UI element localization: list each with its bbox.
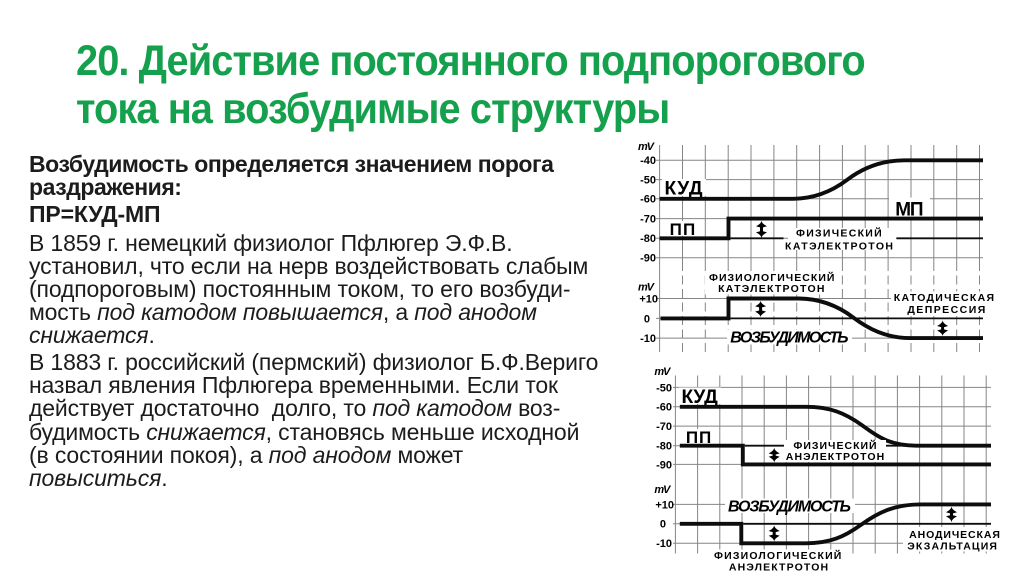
svg-text:КАТЭЛЕКТРОТОН: КАТЭЛЕКТРОТОН — [785, 240, 893, 252]
svg-text:-70: -70 — [640, 214, 656, 226]
svg-text:АНЭЛЕКТРОТОН: АНЭЛЕКТРОТОН — [786, 451, 884, 463]
svg-text:-80: -80 — [656, 441, 672, 453]
svg-text:ЭКЗАЛЬТАЦИЯ: ЭКЗАЛЬТАЦИЯ — [907, 540, 997, 552]
svg-text:КАТОДИЧЕСКАЯ: КАТОДИЧЕСКАЯ — [894, 292, 994, 304]
svg-text:ДЕПРЕССИЯ: ДЕПРЕССИЯ — [907, 304, 985, 316]
svg-text:-60: -60 — [640, 194, 656, 206]
svg-text:-40: -40 — [640, 155, 656, 167]
svg-text:АНЭЛЕКТРОТОН: АНЭЛЕКТРОТОН — [729, 562, 828, 574]
svg-text:-10: -10 — [656, 538, 672, 550]
svg-text:mV: mV — [654, 484, 672, 496]
svg-text:КУД: КУД — [665, 179, 703, 200]
svg-text:ФИЗИЧЕСКИЙ: ФИЗИЧЕСКИЙ — [796, 227, 882, 240]
svg-text:-90: -90 — [656, 459, 672, 471]
svg-text:mV: mV — [638, 282, 656, 294]
svg-text:ПП: ПП — [670, 220, 696, 239]
svg-text:КУД: КУД — [682, 387, 719, 408]
svg-text:-10: -10 — [640, 333, 656, 345]
svg-text:ФИЗИЧЕСКИЙ: ФИЗИЧЕСКИЙ — [793, 439, 876, 452]
svg-text:-80: -80 — [640, 233, 656, 245]
svg-text:ВОЗБУДИМОСТЬ: ВОЗБУДИМОСТЬ — [730, 330, 848, 347]
svg-text:mV: mV — [654, 366, 672, 378]
svg-text:-60: -60 — [656, 402, 672, 414]
svg-text:0: 0 — [644, 313, 650, 325]
svg-text:ФИЗИОЛОГИЧЕСКИЙ: ФИЗИОЛОГИЧЕСКИЙ — [714, 549, 841, 562]
svg-text:КАТЭЛЕКТРОТОН: КАТЭЛЕКТРОТОН — [718, 283, 824, 295]
svg-text:-90: -90 — [640, 253, 656, 265]
svg-text:0: 0 — [660, 519, 666, 531]
svg-text:+10: +10 — [639, 293, 658, 305]
svg-text:+10: +10 — [655, 499, 674, 511]
svg-text:-70: -70 — [656, 421, 672, 433]
svg-text:-50: -50 — [656, 382, 672, 394]
svg-text:ВОЗБУДИМОСТЬ: ВОЗБУДИМОСТЬ — [728, 498, 851, 515]
svg-text:mV: mV — [638, 141, 656, 153]
svg-text:-50: -50 — [640, 175, 656, 187]
